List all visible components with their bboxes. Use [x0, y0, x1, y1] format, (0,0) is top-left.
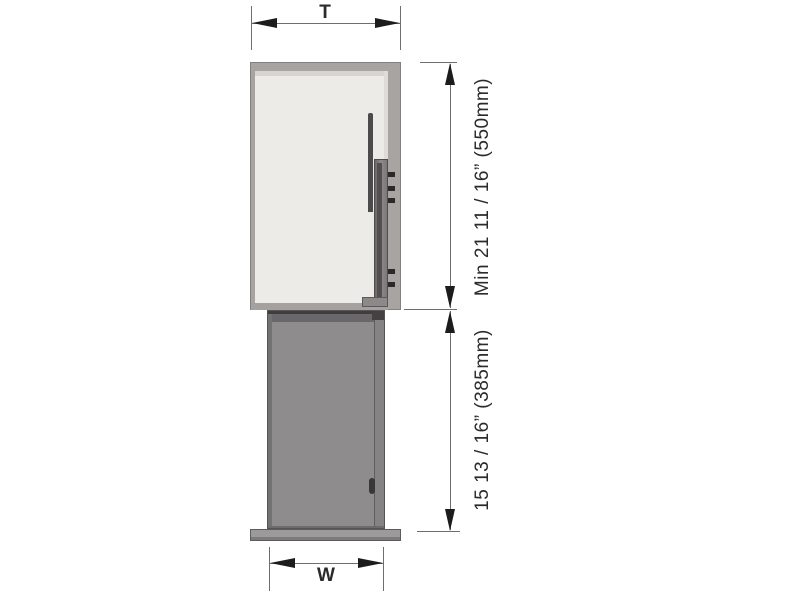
pullout-guide-rod	[368, 113, 373, 212]
pullout-right-seam	[374, 314, 375, 528]
bracket-tab	[388, 186, 395, 191]
diagram-canvas: T W Min 21 11	[0, 0, 800, 600]
base-plate-shade	[251, 537, 400, 540]
lower-height-arrow-up	[445, 311, 455, 333]
bracket-tab	[388, 198, 395, 203]
interior-top-shade	[255, 71, 388, 76]
bracket-tab	[388, 269, 395, 274]
upper-height-label: Min 21 11 / 16” (550mm)	[470, 57, 496, 317]
lower-height-dimension-line	[450, 311, 451, 530]
pullout-bottom-edge	[268, 526, 384, 528]
pullout-corner-fitting	[372, 311, 384, 320]
top-extension-line-right	[400, 6, 401, 50]
bracket-slot	[377, 163, 382, 299]
lower-height-arrow-down	[445, 509, 455, 531]
top-arrow-left	[252, 18, 277, 28]
upper-height-dimension-line	[450, 64, 451, 308]
pullout-left-edge	[268, 314, 272, 528]
base-plate	[250, 529, 401, 541]
right-tick-middle	[404, 309, 457, 310]
pullout-right-panel	[375, 314, 384, 528]
right-tick-bottom	[417, 531, 460, 532]
bracket-tab	[388, 282, 395, 287]
pullout-top-edge	[268, 311, 384, 314]
lower-height-label: 15 13 / 16” (385mm)	[470, 290, 496, 550]
upper-height-arrow-down	[445, 286, 455, 308]
top-arrow-right	[375, 18, 400, 28]
bracket-tab	[388, 172, 395, 177]
bottom-extension-line-right	[383, 547, 384, 591]
bottom-arrow-left	[270, 558, 295, 568]
top-extension-line-left	[251, 6, 252, 50]
bracket-foot	[362, 297, 388, 307]
pullout-unit	[267, 310, 385, 529]
bottom-arrow-right	[358, 558, 383, 568]
pullout-top-band	[268, 314, 384, 322]
pullout-latch	[369, 478, 375, 494]
bottom-extension-line-left	[269, 547, 270, 591]
upper-height-arrow-up	[445, 63, 455, 85]
top-width-label: T	[310, 2, 340, 24]
bottom-width-label: W	[311, 565, 341, 587]
